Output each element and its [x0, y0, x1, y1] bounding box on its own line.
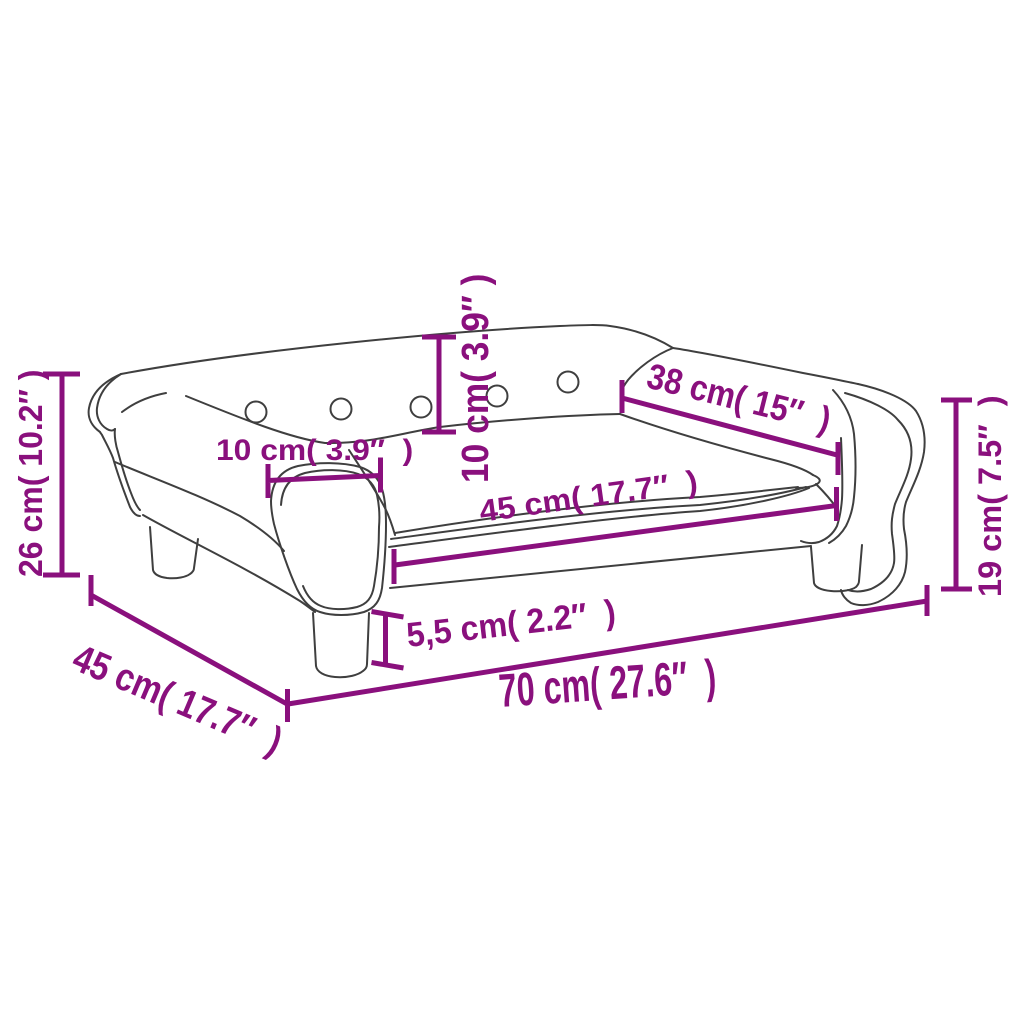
svg-text:10 cm( 3.9″ ): 10 cm( 3.9″ ) [454, 274, 496, 483]
svg-text:26 cm( 10.2″ ): 26 cm( 10.2″ ) [13, 370, 50, 577]
svg-text:70 cm( 27.6″ ): 70 cm( 27.6″ ) [497, 650, 718, 718]
svg-text:19 cm( 7.5″ ): 19 cm( 7.5″ ) [972, 395, 1008, 597]
svg-text:5,5 cm( 2.2″ ): 5,5 cm( 2.2″ ) [405, 594, 618, 656]
svg-text:45 cm( 17.7″ ): 45 cm( 17.7″ ) [477, 463, 700, 528]
svg-text:10 cm( 3.9″ ): 10 cm( 3.9″ ) [216, 433, 413, 467]
svg-text:45 cm( 17.7″ ): 45 cm( 17.7″ ) [67, 635, 289, 763]
